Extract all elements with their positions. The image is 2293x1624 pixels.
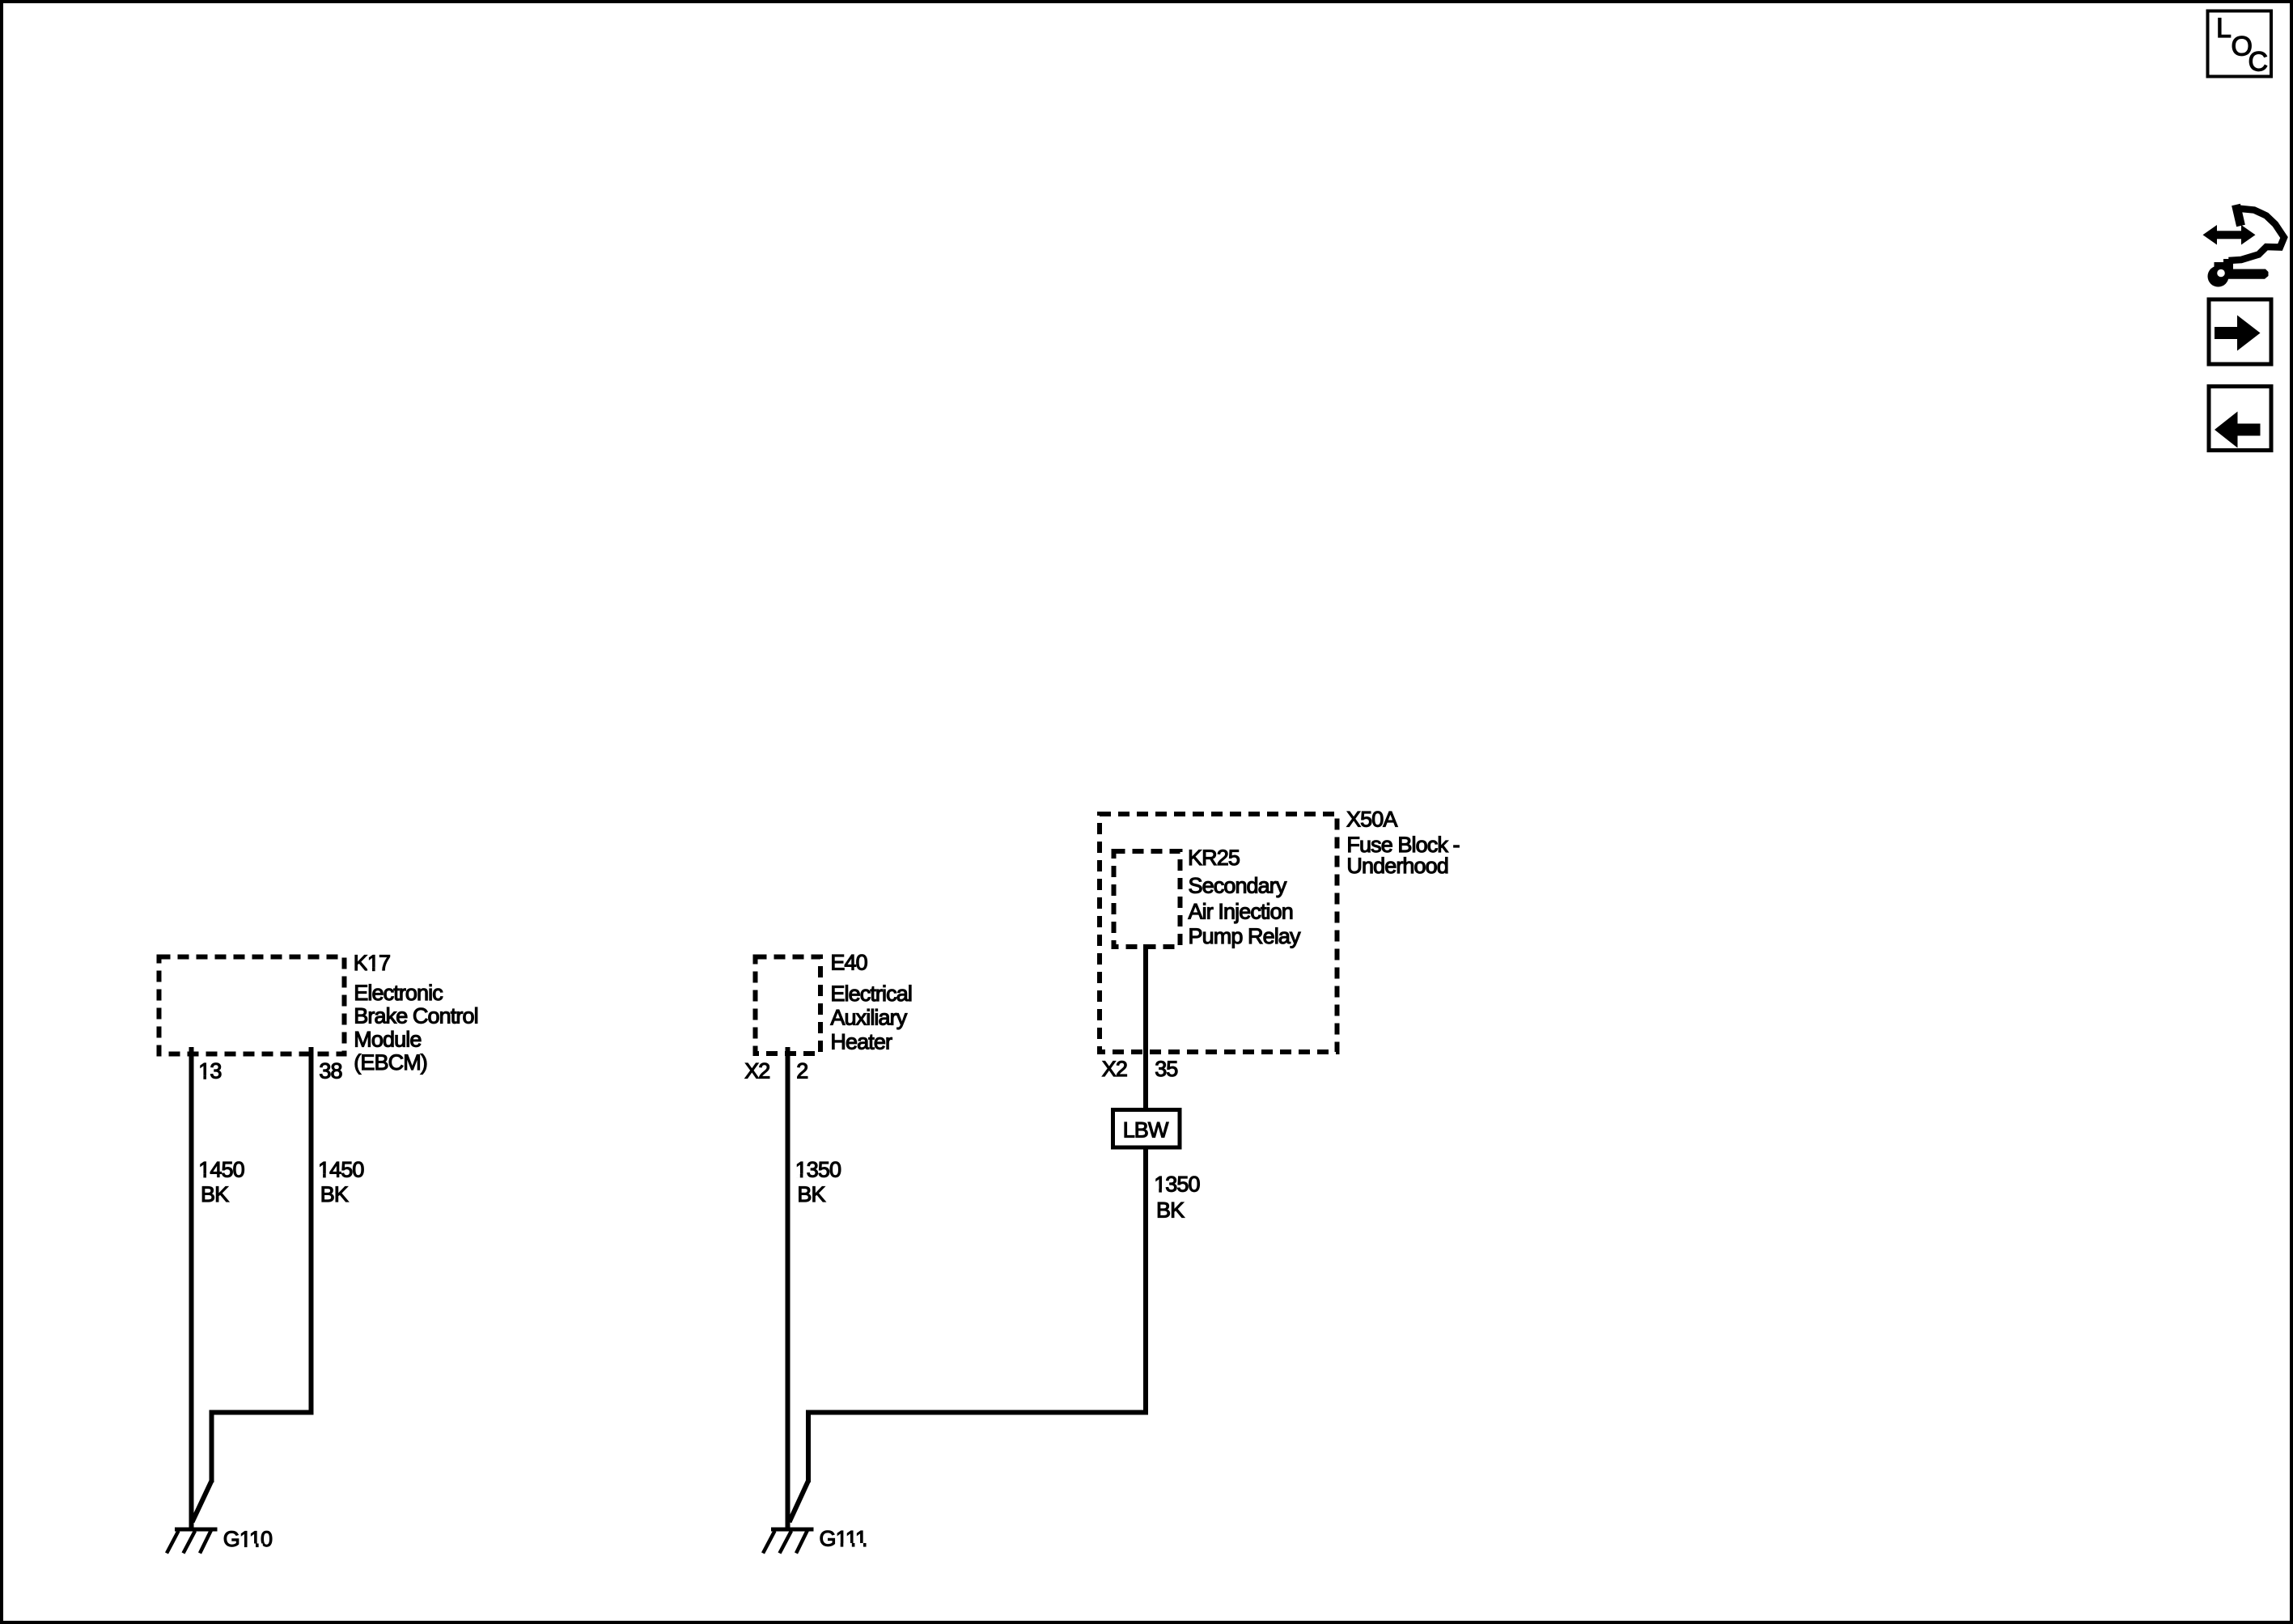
svg-text:1350: 1350 (795, 1157, 841, 1181)
svg-text:Electrical: Electrical (830, 982, 912, 1006)
svg-text:Brake Control: Brake Control (354, 1004, 477, 1028)
svg-text:L: L (2216, 13, 2232, 44)
svg-text:C: C (2248, 47, 2269, 78)
svg-text:35: 35 (1155, 1057, 1177, 1081)
svg-text:1450: 1450 (318, 1157, 363, 1181)
svg-text:Underhood: Underhood (1346, 854, 1448, 878)
svg-text:KR25: KR25 (1188, 846, 1240, 870)
svg-text:Electronic: Electronic (354, 981, 443, 1005)
svg-text:Module: Module (354, 1027, 421, 1051)
svg-text:13: 13 (198, 1059, 221, 1083)
svg-text:Auxiliary: Auxiliary (830, 1006, 907, 1030)
svg-text:BK: BK (201, 1182, 229, 1206)
svg-text:Secondary: Secondary (1189, 874, 1287, 898)
svg-text:BK: BK (797, 1182, 825, 1206)
svg-text:LBW: LBW (1123, 1118, 1169, 1143)
svg-text:BK: BK (1156, 1198, 1185, 1223)
svg-text:X50A: X50A (1346, 807, 1397, 831)
svg-text:X2: X2 (744, 1058, 769, 1083)
svg-text:2: 2 (796, 1058, 807, 1083)
svg-text:(EBCM): (EBCM) (354, 1050, 427, 1075)
svg-text:Pump Relay: Pump Relay (1189, 924, 1301, 948)
svg-text:1350: 1350 (1154, 1172, 1199, 1197)
svg-text:BK: BK (320, 1182, 349, 1206)
svg-text:G111: G111 (820, 1527, 867, 1551)
svg-text:38: 38 (319, 1059, 341, 1083)
svg-text:Air Injection: Air Injection (1189, 900, 1293, 924)
svg-text:1450: 1450 (198, 1157, 244, 1181)
svg-text:E40: E40 (830, 950, 867, 974)
svg-text:X2: X2 (1102, 1057, 1127, 1081)
svg-text:G110: G110 (223, 1527, 272, 1551)
svg-text:K17: K17 (354, 951, 390, 975)
svg-text:Heater: Heater (830, 1030, 892, 1054)
